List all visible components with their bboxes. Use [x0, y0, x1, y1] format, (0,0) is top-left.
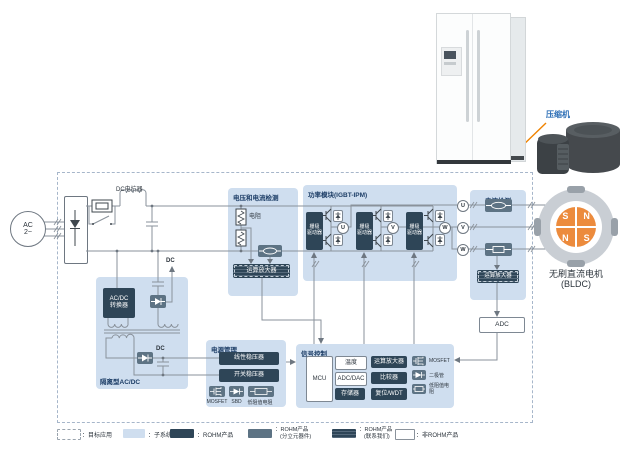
opamp-label: 运算放大器 [246, 268, 276, 275]
diode-icon [412, 370, 426, 380]
sig-icon-label-diode: 二极管 [429, 372, 444, 379]
acdc-converter-block: AC/DC 转换器 [103, 288, 135, 318]
fridge-dispenser-screen [444, 51, 456, 59]
legend-label-non-rohm: ：非ROHM产品 [416, 430, 458, 439]
phase-terminal-w: W [457, 244, 469, 256]
opamp-label: 运算放大器 [374, 359, 404, 366]
switching-regulator-block: 开关稳压器 [219, 369, 279, 382]
low-resistance-resistor-icon [248, 386, 274, 397]
legend-label-subsystem: ：子系统 [148, 430, 172, 439]
motor-name-line2: (BLDC) [526, 279, 623, 289]
legend-swatch-rohm-contact [332, 429, 356, 438]
transformer-icon [104, 318, 180, 338]
sbd-diode-icon [229, 386, 244, 397]
comparator-block: 比较器 [371, 372, 407, 384]
mcu-block: MCU [306, 356, 333, 402]
legend-swatch-non-rohm [395, 429, 415, 440]
fw-diode-icon [383, 210, 393, 222]
shunt-resistor-icon-u [485, 199, 512, 212]
mosfet-icon [209, 386, 225, 397]
pmgmt-icon-label-resistor: 低阻值电阻 [243, 399, 277, 406]
fw-diode-icon [333, 234, 343, 246]
switching-regulator-label: 开关稳压器 [234, 372, 264, 379]
shunt-resistor-icon [258, 245, 282, 257]
shunt-resistor-icon-w [485, 243, 512, 256]
gate-driver-block-w: 栅极 驱动器 [406, 212, 423, 250]
panel-title-power-module: 功率模块(IGBT-IPM) [308, 189, 367, 199]
inrush-resistor-icon [92, 200, 112, 212]
legend-swatch-rohm-discrete [248, 429, 272, 438]
dc-bus-label: DC [166, 258, 175, 264]
phase-node-v: V [387, 222, 399, 234]
rectifier-diode-icon [70, 210, 80, 246]
fw-diode-icon [383, 234, 393, 246]
block-diagram-canvas: 电压和电流检测 功率模块(IGBT-IPM) 电流检测 隔离型AC/DC 电源管… [0, 0, 623, 451]
phase-terminal-u: U [457, 200, 469, 212]
sig-icon-label-mosfet: MOSFET [429, 358, 450, 364]
linear-regulator-label: 线性稳压器 [234, 355, 264, 362]
snubber-diode-icon [150, 295, 166, 308]
dc-output-label: DC [156, 346, 165, 352]
linear-regulator-block: 线性稳压器 [219, 352, 279, 365]
panel-title-isolated-acdc: 隔离型AC/DC [100, 376, 140, 386]
memory-block: 存储器 [335, 388, 365, 400]
gate-driver-block-v: 栅极 驱动器 [356, 212, 373, 250]
adc-block: ADC [479, 317, 525, 333]
ac-source-sublabel: 2~ [24, 229, 32, 236]
legend-swatch-target-application [57, 429, 81, 440]
stator-pad-right [611, 218, 618, 236]
legend-label-rohm-product: ：ROHM产品 [197, 430, 233, 439]
phase-terminal-v: V [457, 222, 469, 234]
sig-icon-label-resistor: 低阻值电阻 [429, 383, 449, 395]
gate-driver-block-u: 栅极 驱动器 [306, 212, 323, 250]
motor-rotor: S N N S [556, 207, 596, 247]
legend-sublabel-rohm-discrete: (分立元器件) [280, 432, 311, 440]
adc-dac-block: ADC/DAC [335, 372, 367, 386]
fw-diode-icon [333, 210, 343, 222]
compressor-illustration [537, 118, 623, 180]
comparator-label: 比较器 [380, 375, 398, 382]
fridge-base [437, 160, 511, 164]
bus-capacitor-icon [146, 206, 158, 251]
signal-wires [286, 256, 497, 362]
fridge-side-panel [509, 17, 526, 162]
ac-source-label: AC [23, 222, 33, 229]
fridge-handle-left [466, 30, 469, 122]
fridge-handle-right [477, 30, 480, 122]
dc-reactor-label: DC电抗器 [116, 184, 143, 193]
pmgmt-icon-label-mosfet: MOSFET [205, 399, 229, 405]
fridge-body [436, 13, 511, 164]
compressor-label: 压缩机 [546, 109, 570, 120]
secondary-diode-icon [137, 352, 153, 364]
low-resistance-resistor-icon [412, 384, 426, 394]
gate-driver-label-l2: 驱动器 [307, 231, 322, 237]
phase-node-u: U [337, 222, 349, 234]
phase-node-w: W [439, 222, 451, 234]
opamp-block-idet: 运算放大器 [477, 270, 519, 283]
legend-label-target-application: ：目标应用 [82, 430, 112, 439]
stator-pad-bottom [567, 260, 585, 267]
stator-pad-left [534, 218, 541, 236]
opamp-label: 运算放大器 [484, 273, 512, 279]
memory-label: 存储器 [341, 391, 359, 398]
stator-pad-top [567, 186, 585, 193]
ac-input-wires [44, 222, 64, 236]
legend-swatch-rohm-product [170, 429, 194, 438]
fw-diode-icon [435, 234, 445, 246]
acdc-converter-label-line1: AC/DC [110, 296, 129, 303]
opamp-block-vdet: 运算放大器 [233, 264, 290, 278]
legend-sublabel-rohm-contact: (联系我们) [364, 432, 390, 440]
panel-title-voltage-current-detection: 电压和电流检测 [233, 192, 279, 202]
gate-driver-label-l2: 驱动器 [357, 231, 372, 237]
gate-driver-label-l2: 驱动器 [407, 231, 422, 237]
fridge-door-gap [472, 14, 473, 160]
temperature-block: 温度 [335, 356, 367, 370]
fridge-base-side [511, 156, 524, 160]
fw-diode-icon [435, 210, 445, 222]
reset-wdt-label: 复位/WDT [375, 391, 402, 398]
reset-wdt-block: 复位/WDT [371, 388, 407, 400]
acdc-converter-label-line2: 转换器 [110, 303, 128, 310]
ac-source: AC 2~ [10, 211, 46, 247]
legend-swatch-subsystem [123, 429, 145, 438]
opamp-block-sig: 运算放大器 [371, 356, 407, 368]
mosfet-icon [412, 356, 426, 366]
resistor-label: 电阻 [249, 211, 261, 220]
fridge-dispenser-slot [444, 62, 456, 65]
